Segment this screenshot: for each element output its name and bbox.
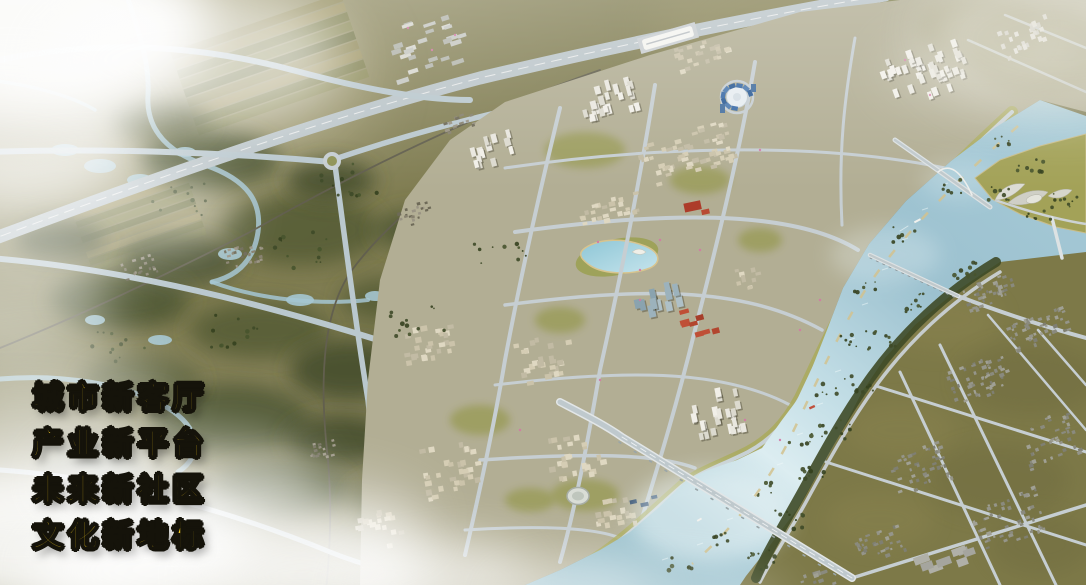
stadium-dome (567, 488, 589, 505)
render-scene (0, 0, 1086, 585)
aerial-city-render: 城市新客厅 产业新平台 未来新社区 文化新地标 (0, 0, 1086, 585)
atmospheric-haze (0, 0, 1086, 190)
